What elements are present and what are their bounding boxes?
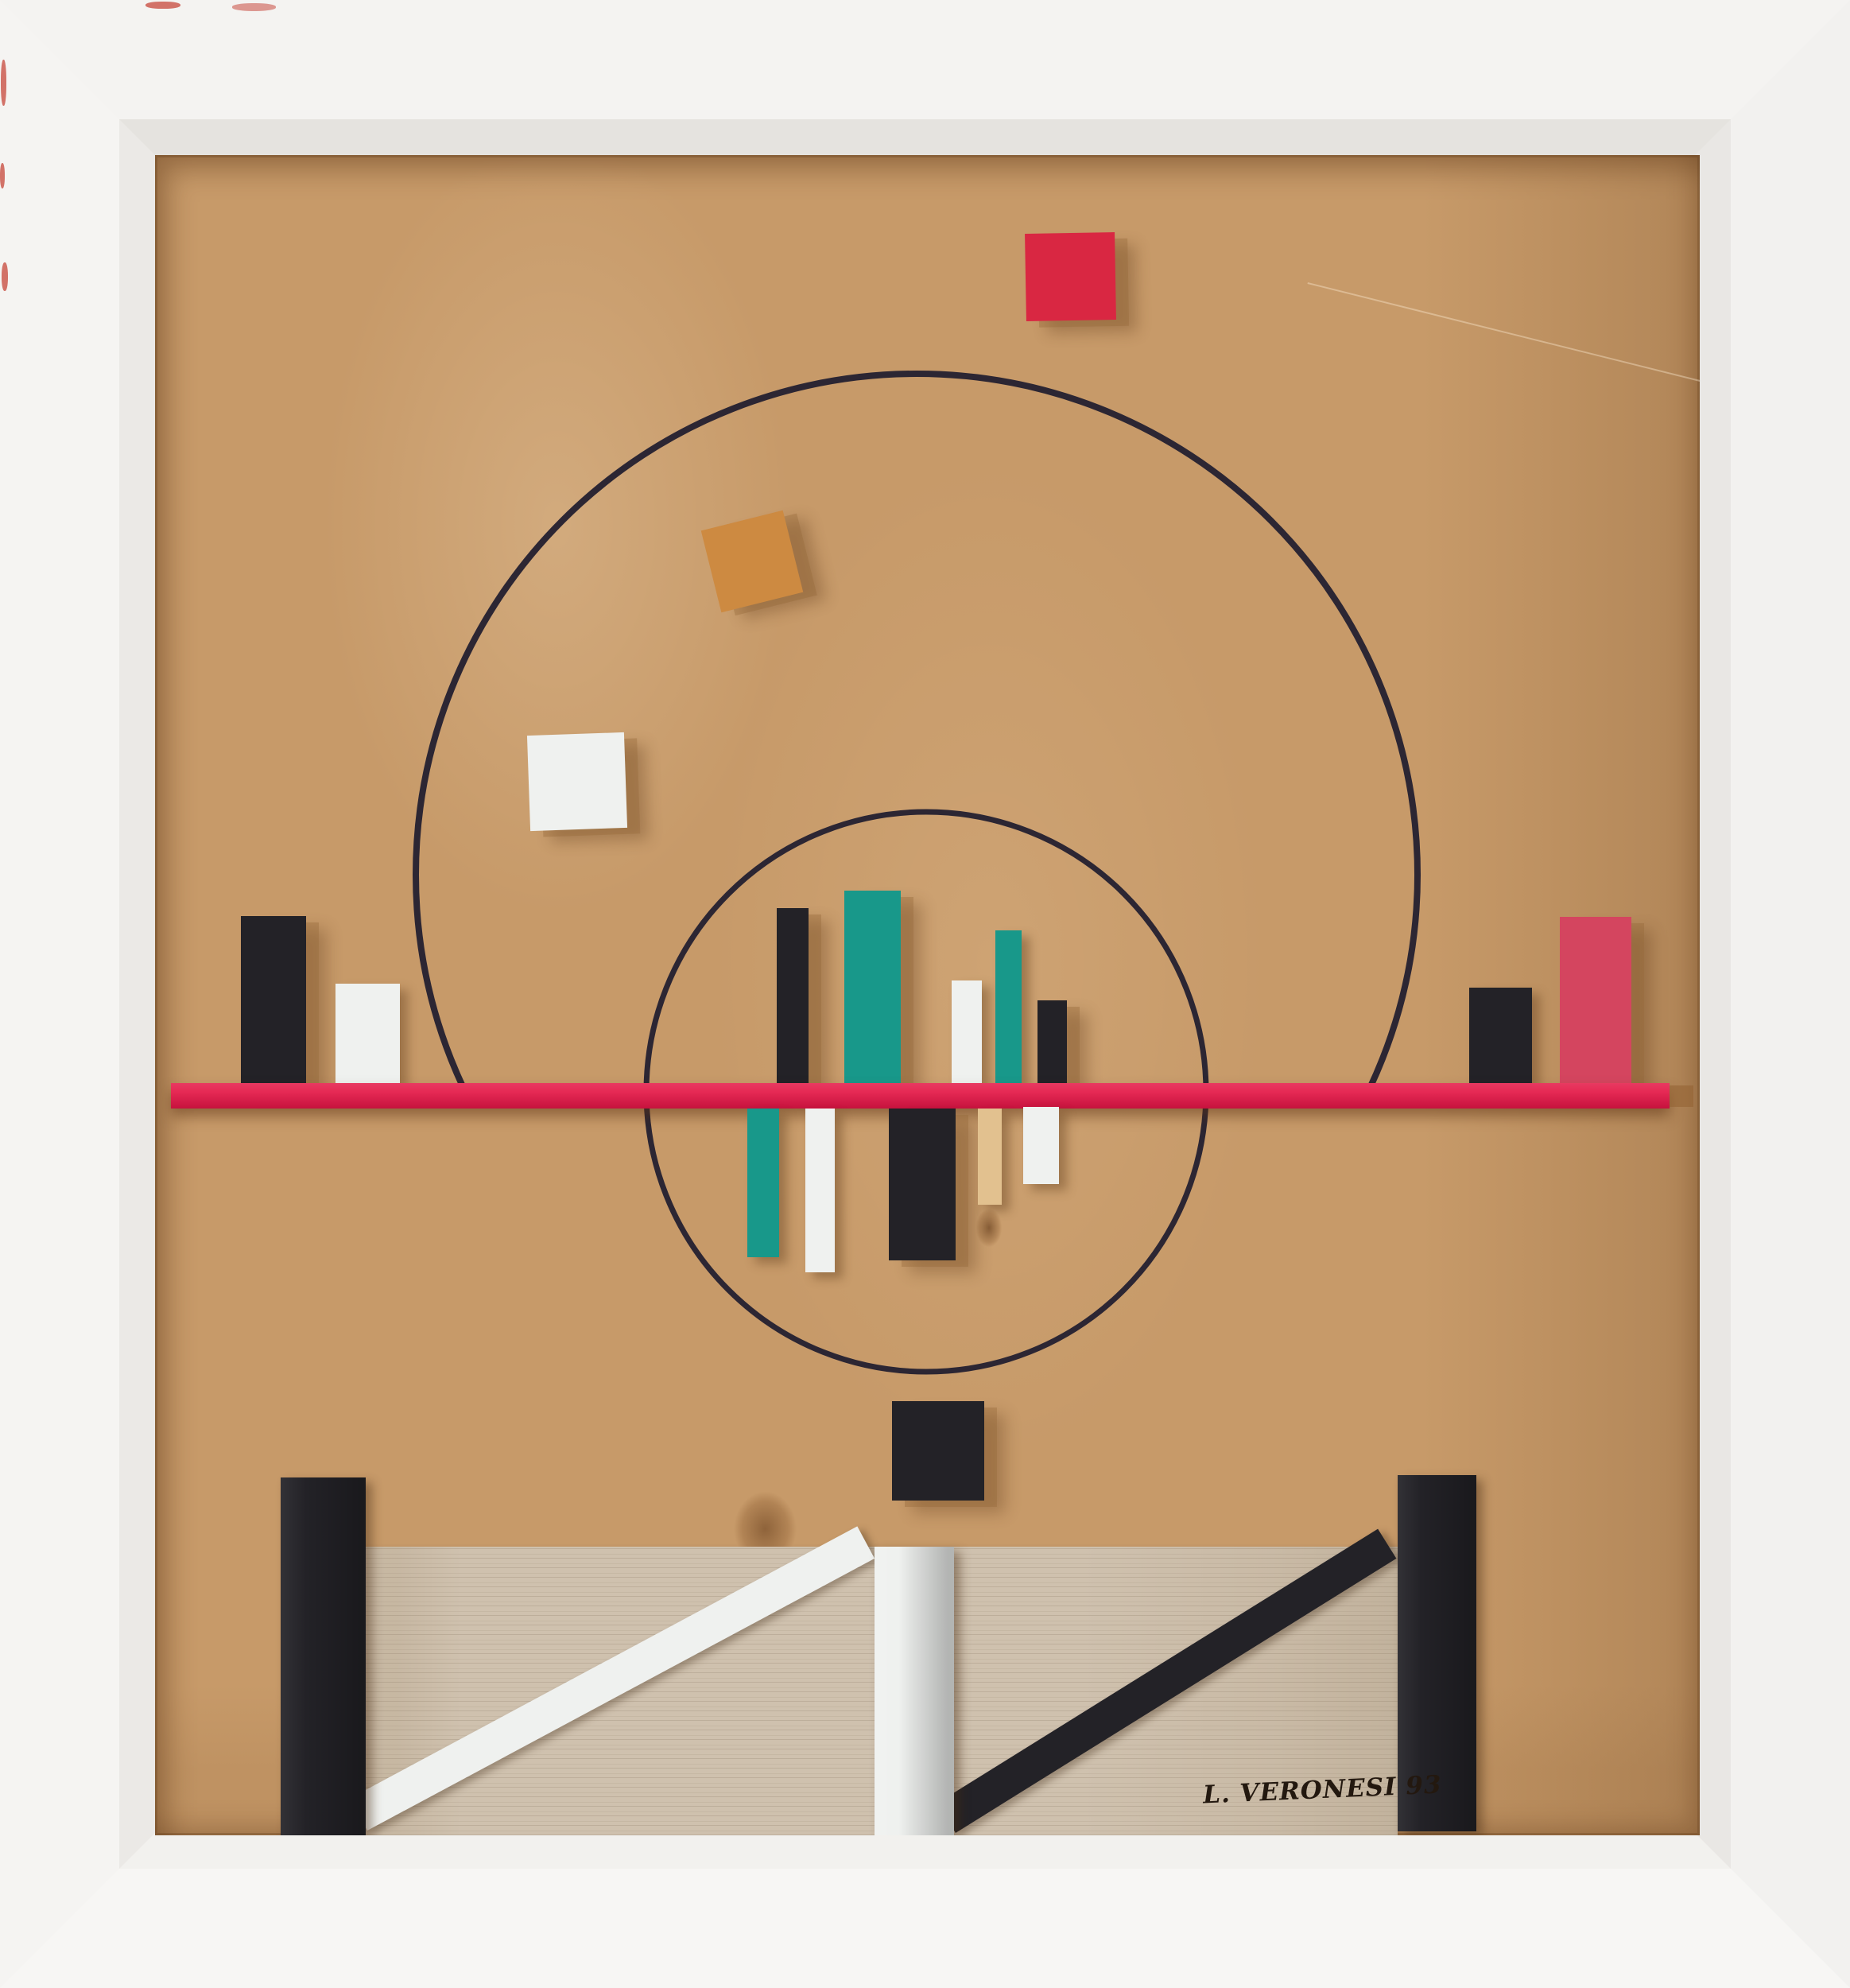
frame-paint-chip — [2, 262, 8, 291]
black-block-right — [1469, 988, 1532, 1083]
teal-bar-large — [844, 891, 901, 1083]
red-square-top — [1025, 232, 1116, 321]
framed-artwork-photo: L. VERONESI 93 — [0, 0, 1850, 1988]
red-shelf-bar — [171, 1083, 1670, 1109]
white-square — [527, 732, 627, 831]
frame-paint-chip — [145, 2, 180, 9]
crimson-block-right — [1560, 917, 1631, 1083]
teal-bar-small — [995, 930, 1022, 1083]
black-bar-center — [777, 908, 809, 1083]
shelf-wood-tip — [1670, 1085, 1693, 1107]
frame-paint-chip — [0, 163, 5, 188]
white-bar-bottom-center — [875, 1547, 954, 1835]
white-block-below — [1023, 1107, 1059, 1184]
black-square-lower — [892, 1401, 984, 1501]
pine-panel: L. VERONESI 93 — [155, 155, 1700, 1835]
black-bar-center-right — [1037, 1000, 1067, 1083]
teal-bar-below — [747, 1109, 779, 1257]
black-block-left — [241, 916, 306, 1083]
white-block-left — [335, 984, 400, 1083]
frame-paint-chip — [232, 3, 276, 11]
black-bar-bottom-left — [281, 1477, 366, 1835]
black-block-below — [889, 1109, 956, 1260]
frame-paint-chip — [1, 60, 6, 106]
white-bar-below — [805, 1109, 835, 1272]
tan-bar-below — [978, 1109, 1002, 1205]
white-bar-center — [952, 980, 982, 1083]
